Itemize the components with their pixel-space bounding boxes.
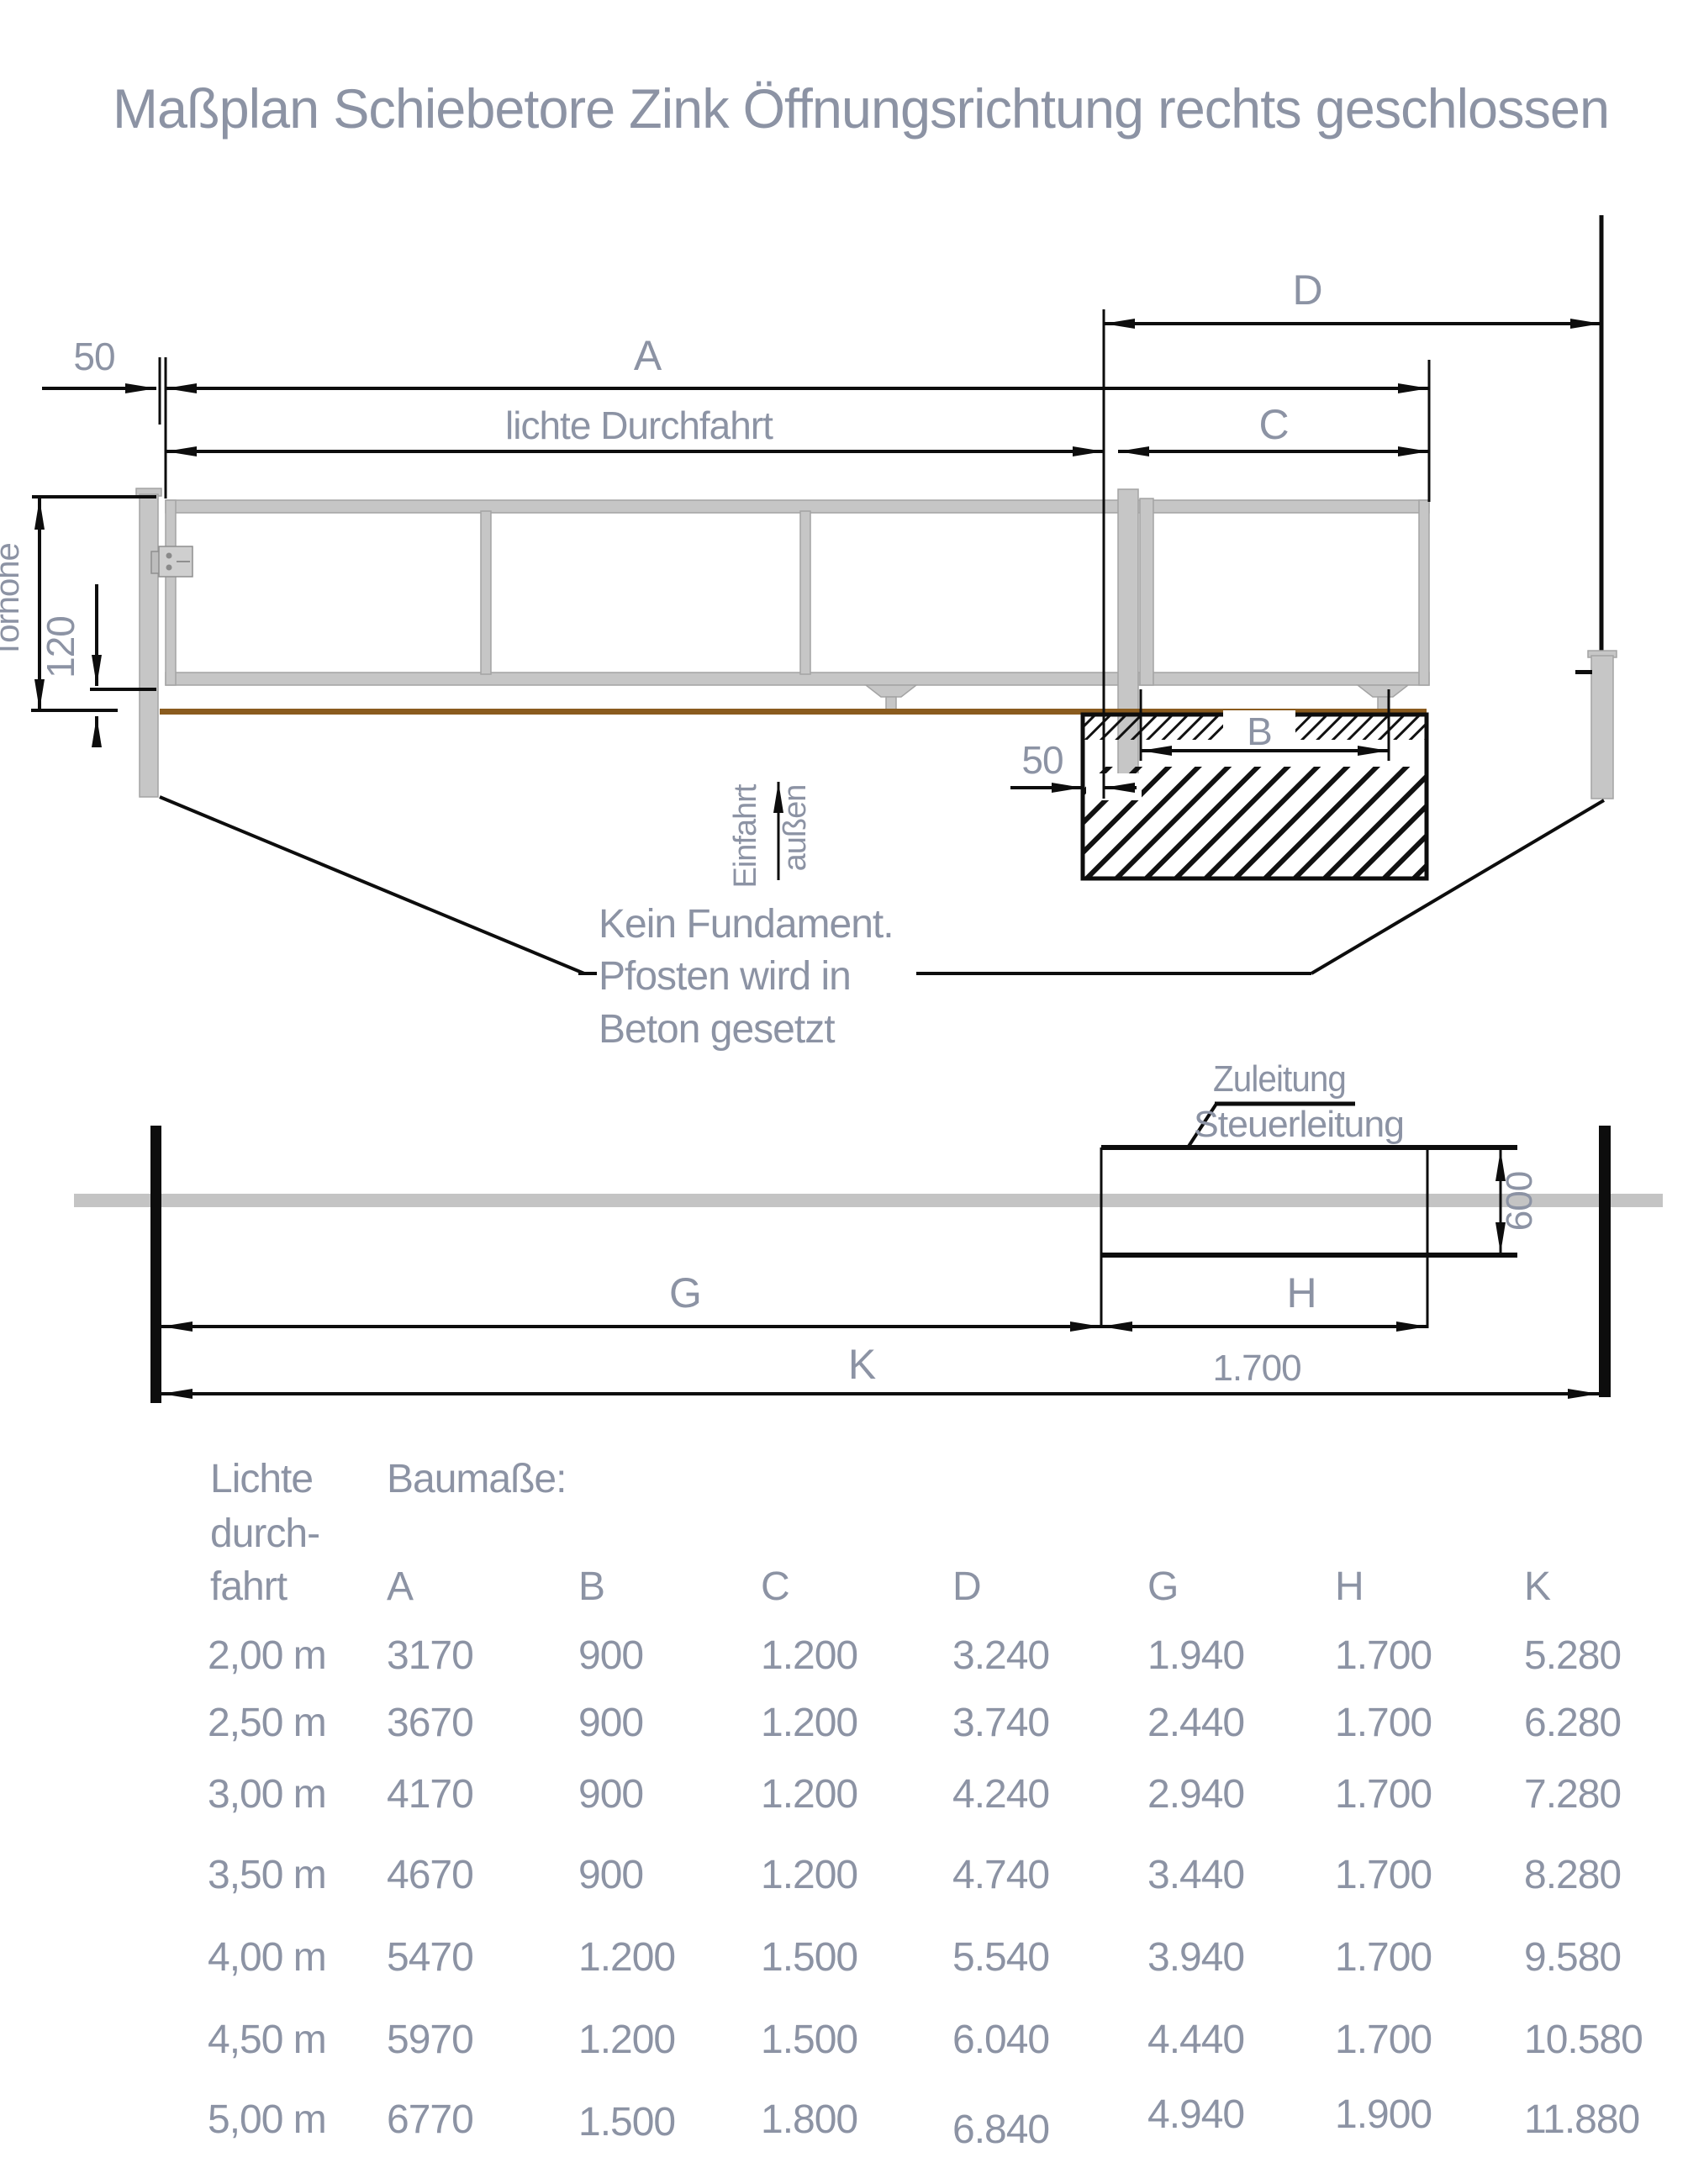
dim-600-label: 600 (1499, 1172, 1540, 1231)
cable-callout: Zuleitung Steuerleitung (1188, 1058, 1404, 1147)
gate-latch (151, 546, 193, 577)
gate-left-stile (166, 500, 176, 685)
cell-d: 6.040 (952, 2018, 1049, 2062)
note-line-3: Beton gesetzt (599, 1007, 835, 1052)
right-post (1575, 651, 1617, 799)
table-col1-header-line2: durch- (210, 1511, 319, 1556)
cell-a: 3670 (387, 1701, 473, 1745)
cell-b: 900 (578, 1853, 643, 1897)
table-row: 3,50 m 4670 900 1.200 4.740 3.440 1.700 … (208, 1853, 1621, 1897)
gate-right-stile (1419, 500, 1429, 685)
technical-drawing-svg: Maßplan Schiebetore Zink Öffnungsrichtun… (0, 0, 1688, 2184)
cell-a: 4170 (387, 1772, 473, 1817)
direction-annotation: Einfahrt außen (728, 782, 813, 888)
table-row: 4,00 m 5470 1.200 1.500 5.540 3.940 1.70… (208, 1935, 1621, 1980)
cell-g: 1.940 (1147, 1633, 1244, 1678)
masplan-schiebetore-drawing: Maßplan Schiebetore Zink Öffnungsrichtun… (0, 0, 1688, 2184)
table-col-a: A (387, 1564, 414, 1609)
table-col1-header-line1: Lichte (210, 1457, 313, 1501)
table-col-k: K (1524, 1564, 1551, 1609)
cell-h: 1.900 (1335, 2092, 1432, 2137)
row-label: 4,50 m (208, 2018, 326, 2062)
dim-d-label: D (1292, 266, 1321, 314)
cell-k: 10.580 (1524, 2018, 1643, 2062)
left-post (136, 488, 161, 797)
steuerleitung-label: Steuerleitung (1194, 1104, 1404, 1145)
table-col1-header-line3: fahrt (210, 1564, 287, 1609)
table-col-c: C (761, 1564, 789, 1609)
dim-lichte-label: lichte Durchfahrt (505, 404, 773, 447)
cell-d: 4.240 (952, 1772, 1049, 1817)
cell-d: 6.840 (952, 2108, 1049, 2152)
cell-g: 2.940 (1147, 1772, 1244, 1817)
right-post-top-view (1599, 1126, 1611, 1397)
cell-d: 3.740 (952, 1701, 1049, 1745)
row-label: 4,00 m (208, 1935, 326, 1980)
row-label: 5,00 m (208, 2097, 326, 2142)
table-row: 2,00 m 3170 900 1.200 3.240 1.940 1.700 … (208, 1633, 1621, 1678)
cell-h: 1.700 (1335, 1701, 1432, 1745)
cell-c: 1.800 (761, 2097, 857, 2142)
cell-g: 3.940 (1147, 1935, 1244, 1980)
cell-c: 1.200 (761, 1633, 857, 1678)
dim-1700-label: 1.700 (1212, 1348, 1300, 1389)
sliding-gate (166, 499, 1429, 685)
page-title: Maßplan Schiebetore Zink Öffnungsrichtun… (113, 77, 1609, 140)
cell-k: 11.880 (1524, 2097, 1639, 2142)
aussen-label: außen (778, 785, 813, 872)
cell-b: 900 (578, 1701, 643, 1745)
cell-a: 4670 (387, 1853, 473, 1897)
cell-k: 5.280 (1524, 1633, 1621, 1678)
cell-h: 1.700 (1335, 1772, 1432, 1817)
cell-g: 3.440 (1147, 1853, 1244, 1897)
table-row: 3,00 m 4170 900 1.200 4.240 2.940 1.700 … (208, 1772, 1621, 1817)
cell-d: 4.740 (952, 1853, 1049, 1897)
dim-a-label: A (634, 332, 662, 379)
zuleitung-label: Zuleitung (1213, 1058, 1346, 1100)
cell-h: 1.700 (1335, 1633, 1432, 1678)
table-col-d: D (952, 1564, 981, 1609)
cell-k: 7.280 (1524, 1772, 1621, 1817)
cell-g: 4.440 (1147, 2018, 1244, 2062)
cell-a: 5470 (387, 1935, 473, 1980)
cell-c: 1.200 (761, 1772, 857, 1817)
table-row: 5,00 m 6770 1.500 1.800 6.840 4.940 1.90… (208, 2092, 1639, 2152)
cell-d: 3.240 (952, 1633, 1049, 1678)
cell-h: 1.700 (1335, 2018, 1432, 2062)
gate-top-rail (166, 500, 1429, 513)
note-line-2: Pfosten wird in (599, 954, 851, 999)
gate-bottom-rail (166, 673, 1429, 685)
gate-foot-right (1358, 685, 1408, 710)
dim-50-bottom-label: 50 (1021, 738, 1063, 782)
cell-c: 1.500 (761, 2018, 857, 2062)
note-line-1: Kein Fundament. (599, 902, 894, 947)
cell-b: 1.200 (578, 2018, 675, 2062)
dim-k-label: K (848, 1341, 876, 1388)
gate-mullion-1 (481, 511, 491, 674)
cell-h: 1.700 (1335, 1853, 1432, 1897)
table-col-g: G (1147, 1564, 1178, 1609)
dim-50-left-label: 50 (73, 335, 114, 378)
cell-c: 1.200 (761, 1701, 857, 1745)
dim-g-label: G (669, 1269, 701, 1316)
dim-c-label: C (1258, 401, 1288, 448)
cell-a: 3170 (387, 1633, 473, 1678)
cell-a: 5970 (387, 2018, 473, 2062)
cell-k: 8.280 (1524, 1853, 1621, 1897)
gate-rear-stile (1140, 499, 1153, 685)
cell-c: 1.500 (761, 1935, 857, 1980)
lower-diagram-top-view: Zuleitung Steuerleitung 600 G H 1.700 K (74, 1058, 1663, 1403)
cell-h: 1.700 (1335, 1935, 1432, 1980)
cell-b: 900 (578, 1772, 643, 1817)
guide-post (1118, 489, 1138, 797)
row-label: 2,50 m (208, 1701, 326, 1745)
fence-line-band (74, 1194, 1663, 1207)
upper-diagram-side-view: 50 A lichte Durchfahrt C D B 50 Torhöhe … (0, 215, 1617, 1052)
leader-left-diagonal (160, 797, 584, 973)
cell-b: 900 (578, 1633, 643, 1678)
einfahrt-label: Einfahrt (728, 783, 763, 888)
cell-g: 4.940 (1147, 2092, 1244, 2137)
dimension-table: Lichte durch- fahrt Baumaße: A B C D G H… (208, 1457, 1643, 2152)
cell-b: 1.500 (578, 2100, 675, 2144)
torhoehe-label: Torhöhe (0, 543, 26, 659)
row-label: 3,00 m (208, 1772, 326, 1817)
table-col-h: H (1335, 1564, 1364, 1609)
gate-foot-left (866, 685, 916, 710)
cell-c: 1.200 (761, 1853, 857, 1897)
row-label: 3,50 m (208, 1853, 326, 1897)
cell-b: 1.200 (578, 1935, 675, 1980)
gate-mullion-2 (800, 511, 810, 674)
dim-b-label: B (1247, 710, 1272, 753)
left-post-top-view (150, 1126, 161, 1403)
cell-a: 6770 (387, 2097, 473, 2142)
table-row: 4,50 m 5970 1.200 1.500 6.040 4.440 1.70… (208, 2018, 1643, 2062)
table-row: 2,50 m 3670 900 1.200 3.740 2.440 1.700 … (208, 1701, 1621, 1745)
cell-k: 6.280 (1524, 1701, 1621, 1745)
table-col-b: B (578, 1564, 604, 1609)
cell-k: 9.580 (1524, 1935, 1621, 1980)
cell-d: 5.540 (952, 1935, 1049, 1980)
cell-g: 2.440 (1147, 1701, 1244, 1745)
dim-120-label: 120 (39, 616, 82, 678)
row-label: 2,00 m (208, 1633, 326, 1678)
table-group-header: Baumaße: (387, 1457, 566, 1501)
dim-h-label: H (1286, 1269, 1316, 1316)
